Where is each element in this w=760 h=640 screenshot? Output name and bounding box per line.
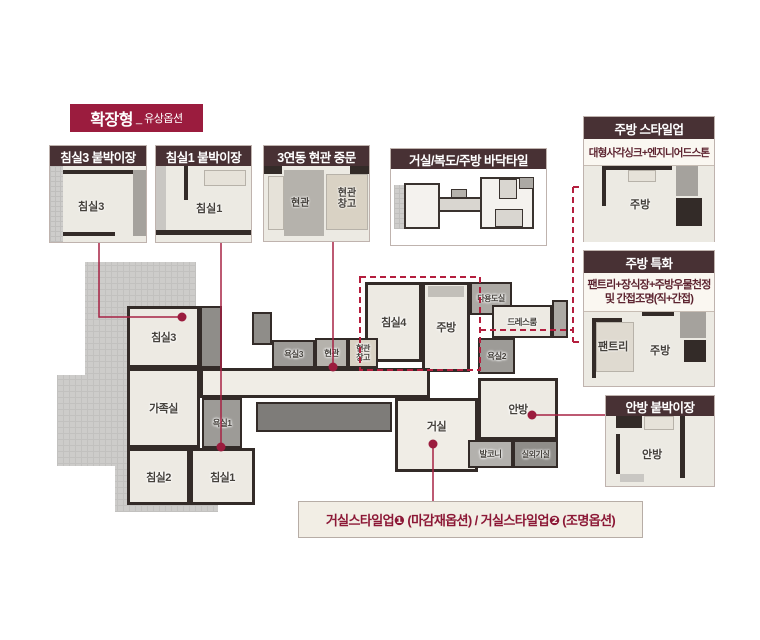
room-bath3-label: 욕실3 [284, 348, 303, 360]
brochure-page: 확장형 _ 유상옵션 침실3 가족실 침실2 침실1 욕실1 욕실3 현관 현관… [0, 0, 760, 640]
room-bed4-label: 침실4 [381, 314, 406, 330]
callout-kitchen-styleup-room-label: 주방 [630, 196, 650, 212]
room-bed3: 침실3 [127, 306, 200, 368]
side-balcony [552, 300, 568, 338]
callout-entry-storage-label: 현관창고 [336, 188, 358, 210]
callout-bed3-thumbnail: 침실3 [50, 166, 146, 242]
room-bed2-label: 침실2 [146, 469, 171, 485]
room-outdoor-unit-label: 실외기실 [522, 449, 549, 460]
room-family-label: 가족실 [149, 400, 178, 416]
room-utility-label: 다용도실 [477, 293, 504, 304]
callout-bed1-closet: 침실1 붙박이장 침실1 [155, 145, 252, 243]
page-title-sub: _ 유상옵션 [136, 110, 183, 126]
room-dressroom-label: 드레스룸 [507, 316, 536, 328]
callout-kitchen-special: 주방 특화 팬트리+장식장+주방우물천정 및 간접조명(직+간접) 팬트리 주방 [583, 250, 715, 387]
room-bed1-label: 침실1 [210, 469, 235, 485]
room-entry-storage-label: 현관창고 [353, 344, 373, 362]
room-entry: 현관 [315, 338, 348, 368]
page-title: 확장형 _ 유상옵션 [70, 104, 203, 132]
callout-bed1-room-label: 침실1 [196, 200, 222, 216]
room-balcony: 발코니 [468, 440, 513, 468]
room-kitchen-label: 주방 [436, 319, 455, 335]
callout-master-thumbnail: 안방 [606, 416, 714, 486]
callout-kitchen-special-thumbnail: 팬트리 주방 [584, 312, 714, 386]
room-outdoor-unit: 실외기실 [513, 440, 558, 468]
room-entry-label: 현관 [324, 347, 339, 359]
room-bath3: 욕실3 [272, 340, 315, 368]
callout-kitchen-special-subtitle-line2: 및 간접조명(직+간접) [605, 292, 693, 306]
callout-bed3-closet-header: 침실3 붙박이장 [50, 146, 146, 166]
room-balcony-label: 발코니 [480, 448, 502, 460]
callout-kitchen-styleup-subtitle: 대형사각싱크+엔지니어드스톤 [584, 139, 714, 166]
room-living: 거실 [395, 398, 478, 472]
callout-master-room-label: 안방 [642, 446, 662, 462]
callout-bed1-thumbnail: 침실1 [156, 166, 251, 242]
callout-kitchen-special-subtitle: 팬트리+장식장+주방우물천정 및 간접조명(직+간접) [584, 273, 714, 312]
callout-kitchen-styleup: 주방 스타일업 대형사각싱크+엔지니어드스톤 주방 [583, 116, 715, 242]
callout-kitchen-special-room-label: 주방 [650, 342, 670, 358]
callout-entry-label: 현관 [291, 194, 309, 209]
room-dressroom: 드레스룸 [492, 305, 552, 338]
room-master: 안방 [478, 378, 558, 440]
callout-master-closet: 안방 붙박이장 안방 [605, 395, 715, 487]
callout-floor-tile: 거실/복도/주방 바닥타일 [390, 148, 547, 246]
callout-bed3-closet: 침실3 붙박이장 침실3 [49, 145, 147, 243]
page-title-main: 확장형 [90, 106, 133, 130]
room-bed3-label: 침실3 [151, 329, 176, 345]
callout-floor-tile-header: 거실/복도/주방 바닥타일 [391, 149, 546, 169]
callout-floor-tile-thumbnail [391, 169, 546, 245]
room-master-label: 안방 [508, 401, 527, 417]
kitchen-counter [428, 286, 464, 297]
room-living-label: 거실 [427, 418, 446, 452]
room-bed1: 침실1 [190, 448, 255, 505]
window-bay [256, 402, 392, 432]
callout-kitchen-styleup-header: 주방 스타일업 [584, 117, 714, 139]
room-bath2: 욕실2 [478, 338, 515, 374]
room-bath1-label: 욕실1 [213, 417, 232, 429]
room-bath1: 욕실1 [202, 398, 242, 448]
callout-entry-door: 3연동 현관 중문 현관 현관창고 [263, 145, 370, 242]
callout-kitchen-special-header: 주방 특화 [584, 251, 714, 273]
room-family: 가족실 [127, 368, 200, 448]
duct-shaft [200, 306, 222, 368]
callout-kitchen-styleup-thumbnail: 주방 [584, 166, 714, 242]
callout-entry-door-header: 3연동 현관 중문 [264, 146, 369, 166]
callout-kitchen-special-pantry-label: 팬트리 [598, 338, 628, 354]
duct-shaft-2 [252, 312, 272, 345]
living-styleup-note: 거실스타일업❶ (마감재옵션) / 거실스타일업❷ (조명옵션) [298, 501, 643, 538]
callout-entry-thumbnail: 현관 현관창고 [264, 166, 369, 241]
callout-bed1-closet-header: 침실1 붙박이장 [156, 146, 251, 166]
callout-bed3-room-label: 침실3 [78, 198, 104, 214]
callout-master-closet-header: 안방 붙박이장 [606, 396, 714, 416]
corridor [200, 368, 430, 398]
room-bed2: 침실2 [127, 448, 190, 505]
room-bath2-label: 욕실2 [487, 350, 506, 362]
callout-kitchen-special-subtitle-line1: 팬트리+장식장+주방우물천정 [587, 278, 710, 292]
living-styleup-note-text: 거실스타일업❶ (마감재옵션) / 거실스타일업❷ (조명옵션) [326, 510, 615, 529]
room-entry-storage: 현관창고 [348, 338, 378, 368]
